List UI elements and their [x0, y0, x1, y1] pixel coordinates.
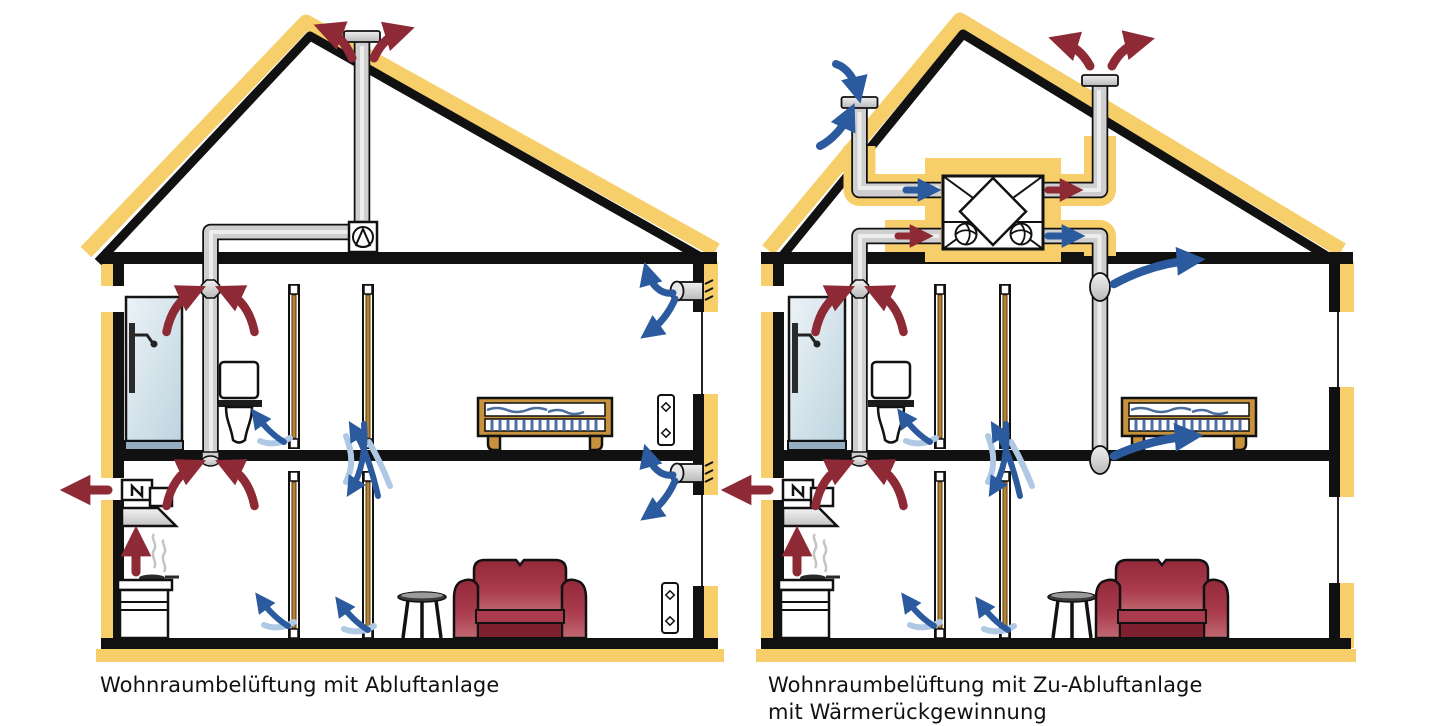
toilet: [216, 362, 262, 443]
extract-valve: [851, 280, 869, 298]
left-house: [72, 22, 724, 662]
extract-grille: [851, 456, 868, 466]
intake-roof-arrow: [836, 64, 858, 93]
toilet: [868, 362, 914, 443]
roof-vent-cap: [344, 31, 380, 42]
windows: [113, 286, 704, 586]
roof-insulation: [86, 22, 716, 252]
structure: [101, 252, 718, 649]
side-table: [1048, 592, 1096, 638]
window: [773, 286, 784, 312]
kitchen-unit: [733, 480, 840, 638]
diagram-canvas: [0, 0, 1440, 726]
caption-right: Wohnraumbelüftung mit Zu-Abluftanlage mi…: [768, 672, 1228, 726]
caption-left: Wohnraumbelüftung mit Abluftanlage: [100, 672, 660, 699]
right-house: [733, 20, 1356, 662]
door-upper-1: [935, 285, 945, 448]
extract-fan: [349, 222, 377, 252]
transfer-air-upper: [902, 415, 936, 443]
intake-roof-cap: [842, 97, 878, 108]
side-table: [398, 592, 446, 638]
exhaust-roof-arrow: [1112, 41, 1143, 66]
extract-valve: [202, 280, 220, 298]
attic-floor: [101, 252, 717, 264]
heat-exchanger-unit: [943, 176, 1043, 249]
supply-air-outlet: [1090, 446, 1110, 474]
ground-floor: [101, 638, 718, 649]
sofa: [1096, 560, 1228, 638]
extract-grille: [202, 456, 219, 466]
intake-roof-arrow: [820, 113, 850, 146]
ventilation-diagram: Wohnraumbelüftung mit Abluftanlage Wohnr…: [0, 0, 1440, 726]
door-ground-1: [935, 472, 945, 638]
airflow-arrows: [167, 29, 714, 631]
supply-air-outlet: [1090, 273, 1110, 301]
sofa: [454, 560, 586, 638]
fan-icon: [1011, 224, 1032, 245]
window: [113, 286, 124, 312]
door-ground-1: [289, 472, 299, 638]
door-ground-2: [1000, 472, 1010, 638]
ground-floor: [761, 638, 1351, 649]
door-ground-2: [363, 472, 373, 638]
window-plate: [658, 395, 674, 445]
bed: [478, 398, 612, 450]
window-plate: [662, 583, 678, 633]
fan-icon: [956, 224, 977, 245]
door-upper-1: [289, 285, 299, 448]
structure: [761, 252, 1353, 649]
hall-extract-arrows: [167, 465, 255, 506]
exhaust-roof-cap: [1082, 75, 1118, 86]
exhaust-roof-arrow: [1060, 41, 1090, 66]
transfer-air-upper: [256, 415, 290, 443]
